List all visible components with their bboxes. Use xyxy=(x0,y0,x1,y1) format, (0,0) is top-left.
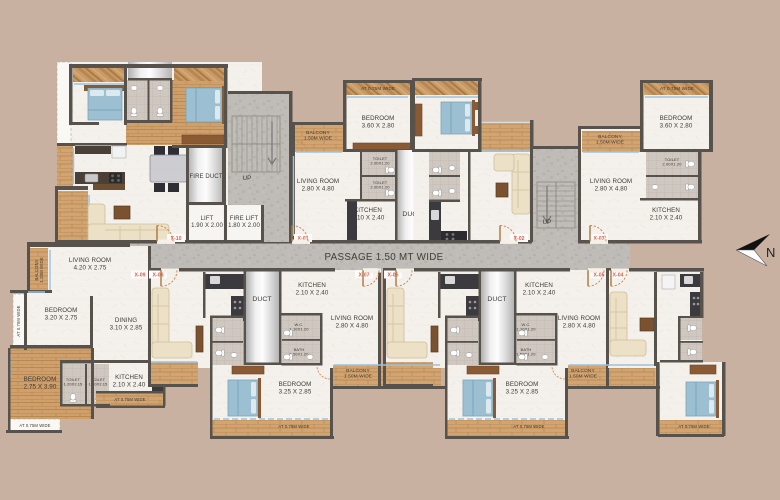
svg-text:BEDROOM3.60 X 2.80: BEDROOM3.60 X 2.80 xyxy=(362,115,395,129)
svg-text:DUCT: DUCT xyxy=(487,296,506,303)
svg-text:BEDROOM3.60 X 2.80: BEDROOM3.60 X 2.80 xyxy=(660,115,693,129)
svg-text:LIVING ROOM2.80 X 4.80: LIVING ROOM2.80 X 4.80 xyxy=(297,178,339,192)
svg-text:BALCONY1.50M WIDE: BALCONY1.50M WIDE xyxy=(344,368,372,380)
svg-text:LIVING ROOM4.20 X 2.75: LIVING ROOM4.20 X 2.75 xyxy=(69,257,111,271)
svg-text:BEDROOM3.25 X 2.85: BEDROOM3.25 X 2.85 xyxy=(506,381,539,395)
svg-text:AT 0.75M WIDE: AT 0.75M WIDE xyxy=(660,86,694,91)
svg-text:FIRE DUCT: FIRE DUCT xyxy=(190,174,223,180)
svg-text:DUCT: DUCT xyxy=(252,296,271,303)
svg-text:KITCHEN2.10 X 2.40: KITCHEN2.10 X 2.40 xyxy=(523,282,556,296)
svg-text:TOILET1.20X2.15: TOILET1.20X2.15 xyxy=(64,377,83,387)
svg-text:BALCONY1.50M WIDE: BALCONY1.50M WIDE xyxy=(569,368,597,380)
svg-text:AT 0.75M WIDE: AT 0.75M WIDE xyxy=(678,424,709,429)
svg-text:N: N xyxy=(766,245,775,260)
svg-text:X-08: X-08 xyxy=(153,273,164,279)
svg-text:KITCHEN2.10 X 2.40: KITCHEN2.10 X 2.40 xyxy=(296,282,329,296)
svg-text:KITCHEN2.10 X 2.40: KITCHEN2.10 X 2.40 xyxy=(113,374,146,388)
svg-text:X-04: X-04 xyxy=(613,273,624,279)
svg-text:UP: UP xyxy=(243,175,252,182)
svg-text:AT 0.75M WIDE: AT 0.75M WIDE xyxy=(513,424,544,429)
svg-text:X-09: X-09 xyxy=(135,273,146,279)
svg-text:AT 0.75M WIDE: AT 0.75M WIDE xyxy=(361,86,395,91)
svg-text:PASSAGE 1.50 MT WIDE: PASSAGE 1.50 MT WIDE xyxy=(325,252,444,263)
svg-text:BALCONY1.50M WIDE: BALCONY1.50M WIDE xyxy=(304,130,332,142)
svg-text:LIVING ROOM2.80 X 4.80: LIVING ROOM2.80 X 4.80 xyxy=(590,178,632,192)
svg-text:X-06: X-06 xyxy=(388,273,399,279)
svg-text:LIVING ROOM2.80 X 4.80: LIVING ROOM2.80 X 4.80 xyxy=(331,315,373,329)
svg-text:BALCONY1.20M WIDE: BALCONY1.20M WIDE xyxy=(34,257,44,282)
svg-text:X-07: X-07 xyxy=(359,273,370,279)
svg-text:FIRE LIFT1.80 X 2.00: FIRE LIFT1.80 X 2.00 xyxy=(228,216,260,229)
svg-text:UP: UP xyxy=(543,219,552,226)
svg-text:AT 0.75M WIDE: AT 0.75M WIDE xyxy=(16,305,21,336)
svg-text:KITCHEN2.10 X 2.40: KITCHEN2.10 X 2.40 xyxy=(650,207,683,221)
svg-text:LIVING ROOM2.80 X 4.80: LIVING ROOM2.80 X 4.80 xyxy=(558,315,600,329)
svg-text:BEDROOM3.20 X 2.75: BEDROOM3.20 X 2.75 xyxy=(45,307,78,321)
svg-text:AT 0.75M WIDE: AT 0.75M WIDE xyxy=(278,424,309,429)
svg-text:BEDROOM2.75 X 3.90: BEDROOM2.75 X 3.90 xyxy=(24,376,57,390)
svg-text:AT 0.75M WIDE: AT 0.75M WIDE xyxy=(19,423,50,428)
svg-text:BALCONY1.50M WIDE: BALCONY1.50M WIDE xyxy=(596,134,624,146)
svg-text:AT 0.75M WIDE: AT 0.75M WIDE xyxy=(114,397,145,402)
svg-text:BEDROOM3.25 X 2.85: BEDROOM3.25 X 2.85 xyxy=(279,381,312,395)
